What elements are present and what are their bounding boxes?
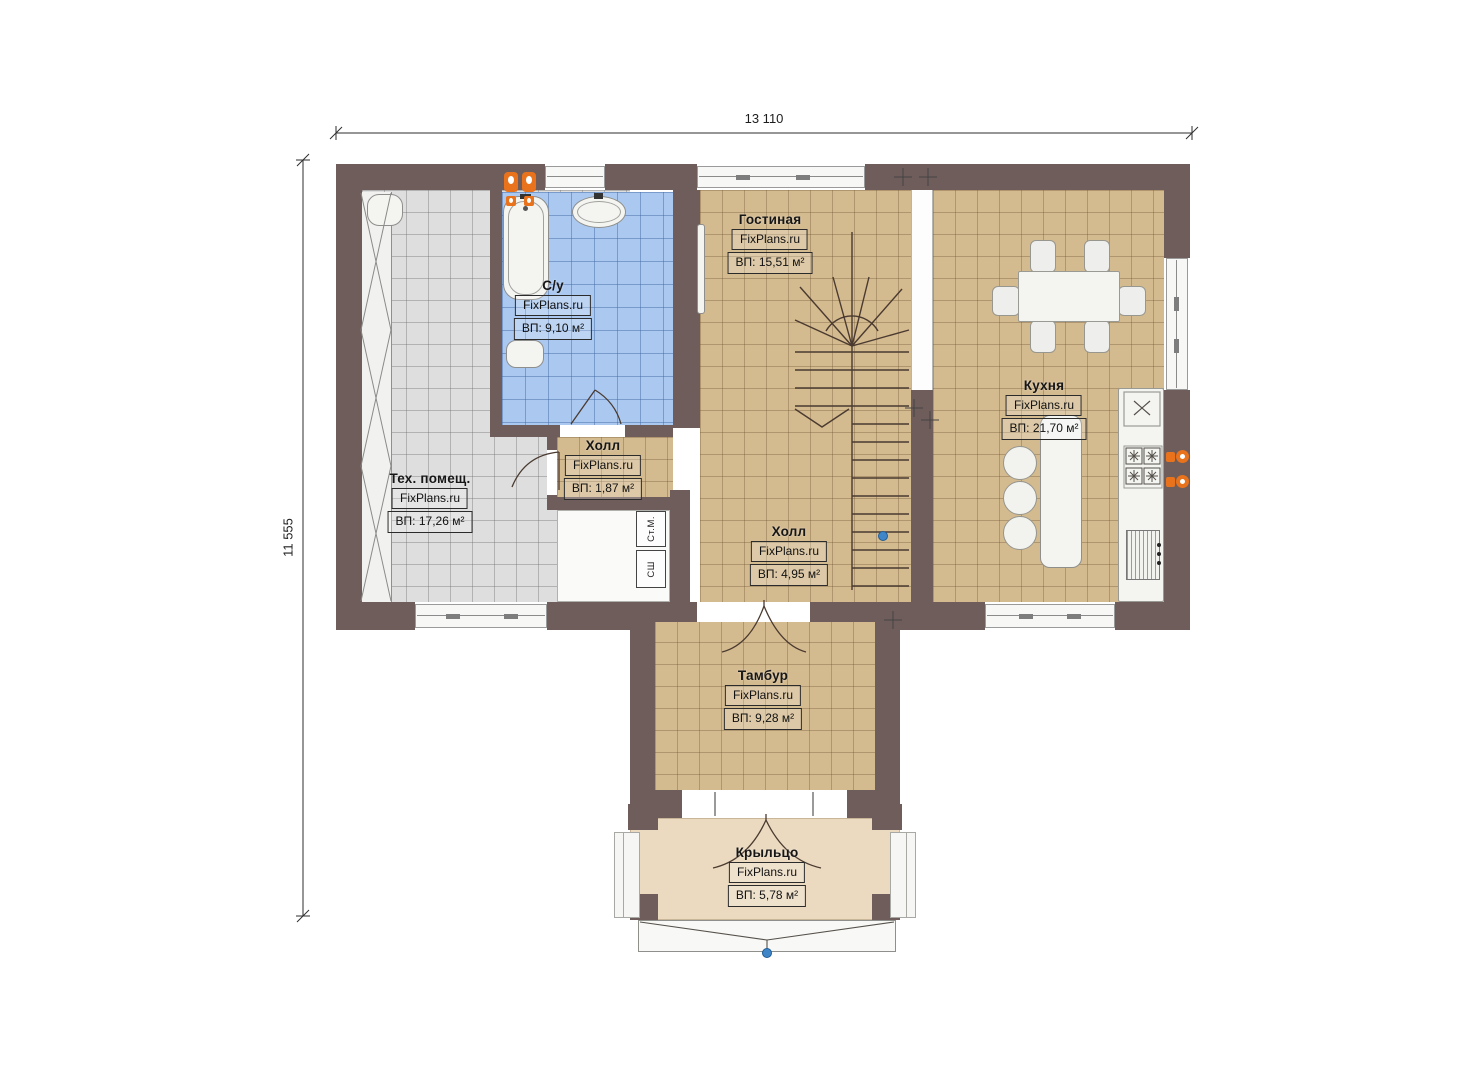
sink <box>572 196 626 228</box>
refrigerator <box>1126 530 1160 580</box>
door-frame-tick <box>714 792 716 816</box>
radiator <box>697 224 705 314</box>
toilet <box>506 340 544 368</box>
chair <box>1030 240 1056 273</box>
drying-cabinet-box: СШ <box>636 550 666 588</box>
water-valve-icon <box>506 196 516 206</box>
porch-pillar-top-left <box>628 804 658 830</box>
boiler <box>367 194 403 226</box>
dining-table <box>1018 271 1120 322</box>
stove-knob-icon <box>1166 452 1175 462</box>
window-mullion <box>446 614 460 619</box>
dimension-height-label: 11 555 <box>281 503 296 573</box>
porch-floor <box>630 818 900 920</box>
window-mullion <box>1174 339 1179 353</box>
washing-machine-label: Ст.М. <box>646 516 657 542</box>
wall-kitchen-partition <box>911 390 933 602</box>
counter-dot <box>1157 561 1161 565</box>
door-frame-tick <box>812 792 814 816</box>
chair <box>1118 286 1146 316</box>
window-kitchen-bottom <box>985 604 1115 628</box>
porch-side-steps-right <box>890 832 916 918</box>
water-riser-icon <box>522 172 536 192</box>
hall-small-floor <box>557 437 673 499</box>
wall-hall-small-bottom <box>547 497 673 510</box>
porch-pillar-top-right <box>872 804 902 830</box>
window-kitchen-right <box>1166 258 1188 390</box>
kitchen-island <box>1040 415 1082 568</box>
kitchen-passage-opening <box>911 190 933 390</box>
wall-top-right <box>865 164 1190 190</box>
living-room-floor <box>700 190 911 602</box>
chair <box>992 286 1020 316</box>
wall-left <box>336 190 362 630</box>
tech-room-shelving <box>360 192 392 602</box>
window-mullion <box>1174 297 1179 311</box>
window-mullion <box>1067 614 1081 619</box>
wall-bathroom-bottom-r <box>625 425 673 437</box>
wall-bottom-d <box>1115 602 1190 630</box>
porch-side-steps-left <box>614 832 640 918</box>
chair <box>1084 240 1110 273</box>
hall-small-opening <box>673 428 700 490</box>
stove-knob-icon <box>1166 477 1175 487</box>
window-mullion <box>1019 614 1033 619</box>
wall-right-upper <box>1164 190 1190 258</box>
wall-hall-right-lower <box>670 490 690 602</box>
wall-vestibule-bottom-r <box>847 790 875 818</box>
wall-vestibule-left <box>630 602 655 806</box>
wall-bottom-c <box>900 602 985 630</box>
drying-cabinet-label: СШ <box>646 561 657 578</box>
wall-bathroom-right <box>673 190 700 428</box>
wall-vestibule-top-r <box>810 602 875 622</box>
bathtub <box>503 196 549 300</box>
dimension-width-label: 13 110 <box>745 111 784 126</box>
stove-knob-icon <box>1176 450 1189 463</box>
vestibule-bottom-door-opening <box>682 790 847 818</box>
bathtub-drain-icon <box>523 206 528 211</box>
washing-machine-box: Ст.М. <box>636 511 666 547</box>
window-mullion <box>504 614 518 619</box>
vestibule-floor <box>655 620 875 790</box>
bar-stool <box>1003 481 1037 515</box>
tech-room-door-opening <box>547 450 557 495</box>
wall-vestibule-right <box>875 602 900 806</box>
wall-top-mid <box>605 164 697 190</box>
wall-vestibule-top-l <box>655 602 697 622</box>
wall-bottom-b <box>547 602 630 630</box>
vestibule-top-door-opening <box>697 602 810 622</box>
window-mullion <box>736 175 750 180</box>
wall-right-lower <box>1164 390 1190 630</box>
wall-bathroom-bottom-l <box>502 425 560 437</box>
chair <box>1030 320 1056 353</box>
stove-knob-icon <box>1176 475 1189 488</box>
water-riser-icon <box>504 172 518 192</box>
sink-faucet-icon <box>594 193 603 199</box>
bar-stool <box>1003 446 1037 480</box>
water-valve-icon <box>524 196 534 206</box>
wall-bottom-a <box>362 602 415 630</box>
bathroom-door-opening <box>560 425 625 437</box>
porch-steps <box>638 920 896 952</box>
counter-dot <box>1157 552 1161 556</box>
window-tech-bottom <box>415 604 547 628</box>
counter-dot <box>1157 543 1161 547</box>
window-bathroom-top <box>545 166 605 188</box>
floor-plan-canvas: Ст.М. СШ Гостиная FixPlans.ru ВП: 15,51 … <box>0 0 1474 1080</box>
chair <box>1084 320 1110 353</box>
window-living-top <box>697 166 865 188</box>
wall-bathroom-left <box>490 190 502 437</box>
window-mullion <box>796 175 810 180</box>
wall-vestibule-bottom-l <box>655 790 682 818</box>
bar-stool <box>1003 516 1037 550</box>
